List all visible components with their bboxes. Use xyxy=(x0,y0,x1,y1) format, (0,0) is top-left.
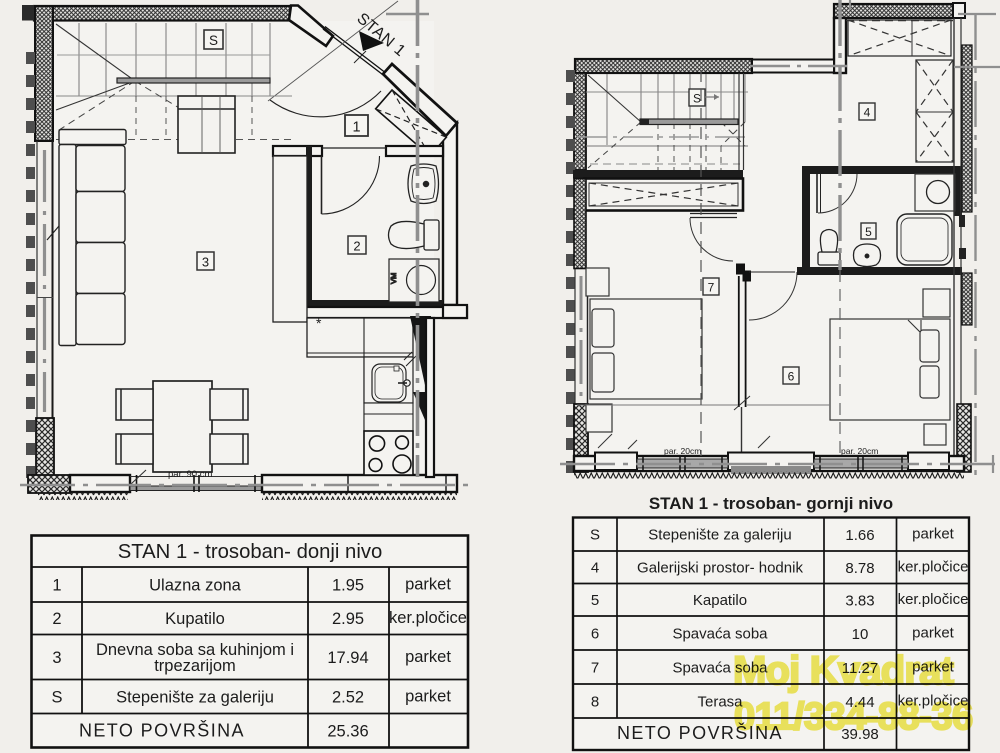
svg-text:2: 2 xyxy=(52,610,61,628)
svg-text:25.36: 25.36 xyxy=(327,723,368,741)
svg-text:ker.pločice: ker.pločice xyxy=(389,609,467,627)
svg-text:STAN 1 - trosoban- gornji nivo: STAN 1 - trosoban- gornji nivo xyxy=(649,494,893,513)
svg-text:6: 6 xyxy=(788,370,795,384)
svg-text:1: 1 xyxy=(352,120,360,136)
svg-text:011/334-88-36: 011/334-88-36 xyxy=(734,696,973,738)
svg-text:par. 20cm: par. 20cm xyxy=(664,446,701,456)
svg-text:7: 7 xyxy=(708,281,715,295)
svg-text:Stepenište za galeriju: Stepenište za galeriju xyxy=(116,689,274,707)
svg-text:S: S xyxy=(51,689,62,707)
svg-text:S: S xyxy=(693,92,701,106)
svg-text:8.78: 8.78 xyxy=(845,560,874,577)
svg-text:VM: VM xyxy=(389,273,398,284)
svg-text:17.94: 17.94 xyxy=(327,649,368,667)
svg-text:parket: parket xyxy=(405,688,451,706)
svg-text:parket: parket xyxy=(405,648,451,666)
svg-text:7: 7 xyxy=(591,660,599,677)
svg-text:parket: parket xyxy=(405,576,451,594)
svg-text:4: 4 xyxy=(864,106,871,120)
svg-text:par. 20cm: par. 20cm xyxy=(841,446,878,456)
svg-text:*: * xyxy=(316,315,322,331)
svg-text:Ulazna zona: Ulazna zona xyxy=(149,577,242,595)
svg-text:parket: parket xyxy=(912,526,955,543)
svg-text:S: S xyxy=(590,527,600,544)
svg-text:Kupatilo: Kupatilo xyxy=(165,610,225,628)
svg-text:Galerijski prostor- hodnik: Galerijski prostor- hodnik xyxy=(637,560,803,577)
svg-text:1: 1 xyxy=(52,577,61,595)
svg-text:2.52: 2.52 xyxy=(332,689,364,707)
svg-text:STAN 1 - trosoban- donji nivo: STAN 1 - trosoban- donji nivo xyxy=(118,541,383,563)
svg-text:3: 3 xyxy=(202,255,209,270)
svg-text:10: 10 xyxy=(852,626,869,643)
svg-text:4: 4 xyxy=(591,560,599,577)
svg-text:6: 6 xyxy=(591,626,599,643)
svg-text:2.95: 2.95 xyxy=(332,610,364,628)
svg-text:5: 5 xyxy=(865,225,872,239)
svg-text:ker.pločice: ker.pločice xyxy=(898,591,969,608)
svg-text:8: 8 xyxy=(591,694,599,711)
svg-text:ker.pločice: ker.pločice xyxy=(898,559,969,576)
svg-text:parket: parket xyxy=(912,625,955,642)
svg-text:S: S xyxy=(209,33,218,48)
svg-text:5: 5 xyxy=(591,592,599,609)
svg-text:1.66: 1.66 xyxy=(845,527,874,544)
svg-text:NETO POVRŠINA: NETO POVRŠINA xyxy=(79,720,245,741)
svg-text:Kapatilo: Kapatilo xyxy=(693,592,747,609)
svg-text:Spavaća soba: Spavaća soba xyxy=(672,626,768,643)
svg-text:1.95: 1.95 xyxy=(332,577,364,595)
svg-text:2: 2 xyxy=(353,239,360,254)
svg-text:trpezarijom: trpezarijom xyxy=(154,657,236,675)
svg-text:3: 3 xyxy=(52,649,61,667)
svg-text:Stepenište za galeriju: Stepenište za galeriju xyxy=(648,527,791,544)
svg-text:Moj Kvadrat: Moj Kvadrat xyxy=(733,649,954,693)
svg-text:par. 90 cm: par. 90 cm xyxy=(168,469,212,480)
svg-text:3.83: 3.83 xyxy=(845,593,874,610)
